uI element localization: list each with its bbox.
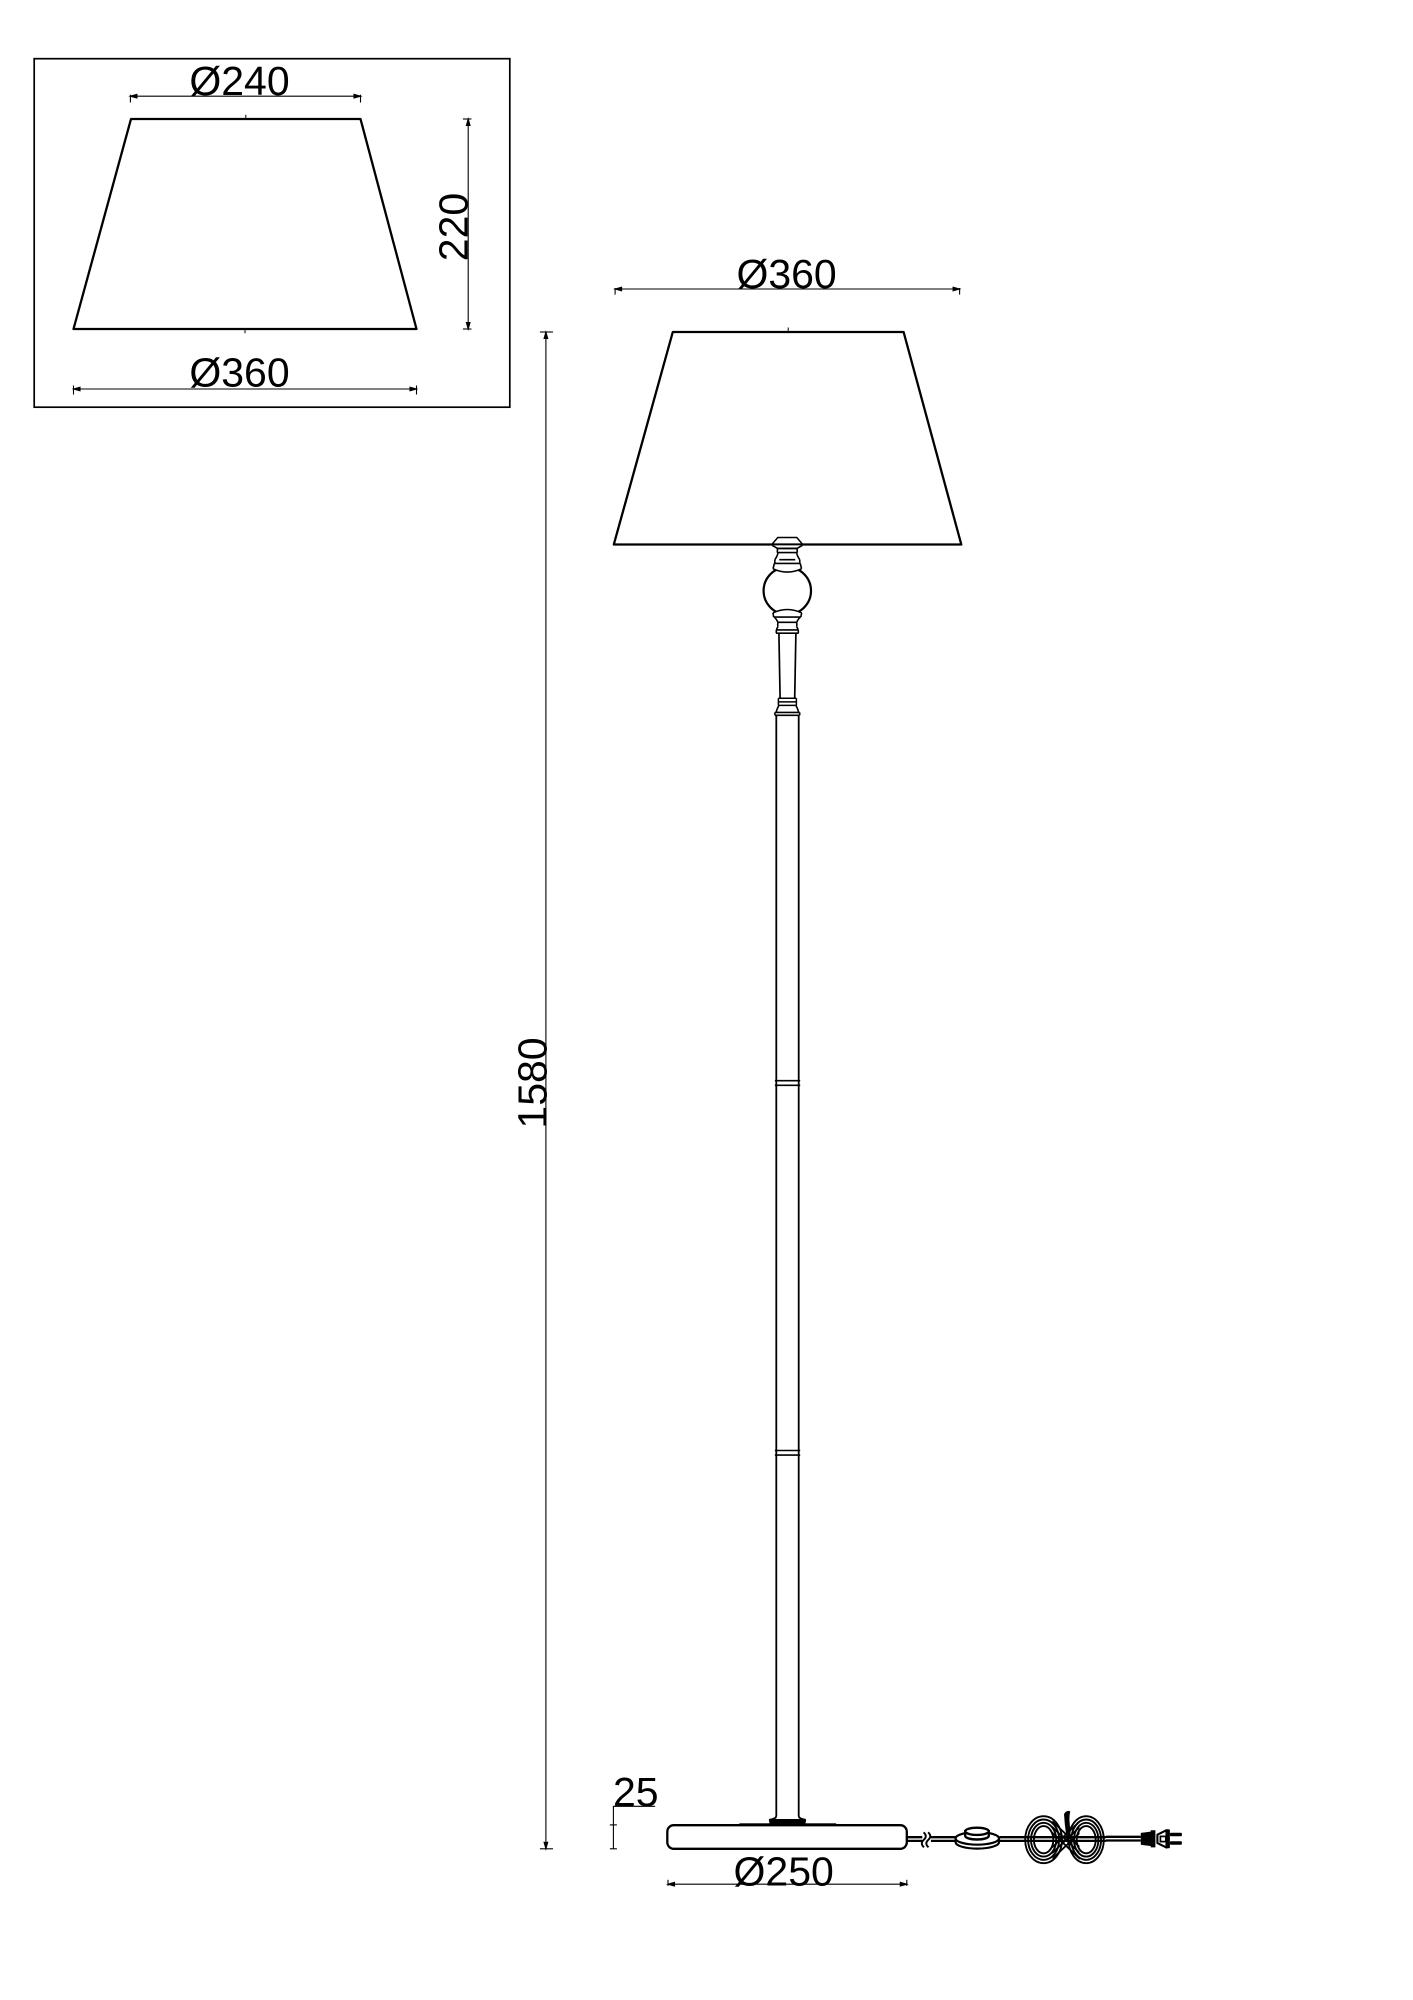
svg-text:Ø360: Ø360 <box>736 251 836 297</box>
svg-text:1580: 1580 <box>510 1037 556 1128</box>
svg-text:Ø250: Ø250 <box>734 1848 834 1894</box>
svg-text:Ø240: Ø240 <box>189 58 289 104</box>
svg-text:220: 220 <box>431 193 477 261</box>
svg-text:25: 25 <box>613 1769 659 1815</box>
